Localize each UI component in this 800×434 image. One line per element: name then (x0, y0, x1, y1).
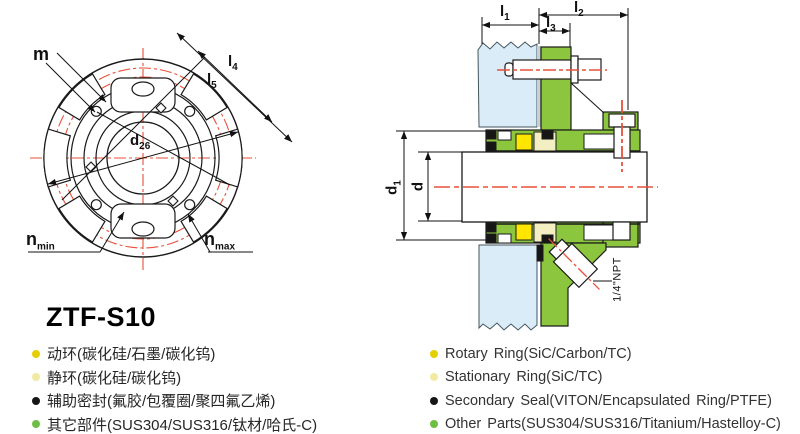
legend-item: Rotary Ring(SiC/Carbon/TC) (430, 342, 781, 366)
section-view-drawing (385, 0, 800, 340)
legend-item: Stationary Ring(SiC/TC) (430, 366, 781, 390)
legend-item: 其它部件(SUS304/SUS316/钛材/哈氏-C) (32, 413, 317, 434)
legend-english: Rotary Ring(SiC/Carbon/TC)Stationary Rin… (430, 342, 781, 434)
bullet-icon (430, 350, 438, 358)
dim-label-l2: l2 (574, 0, 584, 19)
dim-label-d26: d26 (130, 133, 150, 152)
dim-label-nmax: nmax (204, 230, 235, 253)
bullet-icon (430, 420, 438, 428)
dim-label-l4: l4 (228, 54, 238, 73)
bullet-icon (430, 373, 438, 381)
legend-item: 静环(碳化硅/碳化钨) (32, 366, 317, 390)
legend-item-label: Stationary Ring(SiC/TC) (445, 369, 603, 385)
legend-item: Other Parts(SUS304/SUS316/Titanium/Haste… (430, 413, 781, 434)
legend-item-label: 其它部件(SUS304/SUS316/钛材/哈氏-C) (47, 414, 317, 434)
bullet-icon (32, 397, 40, 405)
dim-label-l1: l1 (500, 4, 510, 23)
dim-label-l5: l5 (207, 72, 217, 91)
legend-item-label: 动环(碳化硅/石墨/碳化钨) (47, 343, 215, 364)
legend-item-label: 辅助密封(氟胶/包覆圈/聚四氟乙烯) (47, 390, 275, 411)
catalog-page: m l4 l5 d26 nmin nmax l1 l2 l3 d1 d 1/4"… (0, 0, 800, 434)
dim-label-nmin: nmin (26, 230, 55, 253)
legend-item-label: Other Parts(SUS304/SUS316/Titanium/Haste… (445, 416, 781, 432)
legend-item-label: Secondary Seal(VITON/Encapsulated Ring/P… (445, 393, 772, 409)
bullet-icon (32, 420, 40, 428)
dim-label-d1: d1 (385, 173, 404, 203)
dim-label-l3: l3 (546, 15, 556, 34)
dim-label-d: d (411, 175, 426, 199)
dim-label-npt: 1/4"NPT (613, 246, 624, 314)
bullet-icon (32, 373, 40, 381)
bullet-icon (430, 397, 438, 405)
legend-chinese: 动环(碳化硅/石墨/碳化钨)静环(碳化硅/碳化钨)辅助密封(氟胶/包覆圈/聚四氟… (32, 342, 317, 434)
legend-item: 辅助密封(氟胶/包覆圈/聚四氟乙烯) (32, 389, 317, 413)
legend-item: Secondary Seal(VITON/Encapsulated Ring/P… (430, 389, 781, 413)
dim-label-m: m (33, 45, 49, 63)
bullet-icon (32, 350, 40, 358)
legend-item: 动环(碳化硅/石墨/碳化钨) (32, 342, 317, 366)
model-title: ZTF-S10 (46, 302, 156, 333)
legend-item-label: 静环(碳化硅/碳化钨) (47, 367, 181, 388)
legend-item-label: Rotary Ring(SiC/Carbon/TC) (445, 346, 632, 362)
front-view-drawing (0, 0, 330, 300)
